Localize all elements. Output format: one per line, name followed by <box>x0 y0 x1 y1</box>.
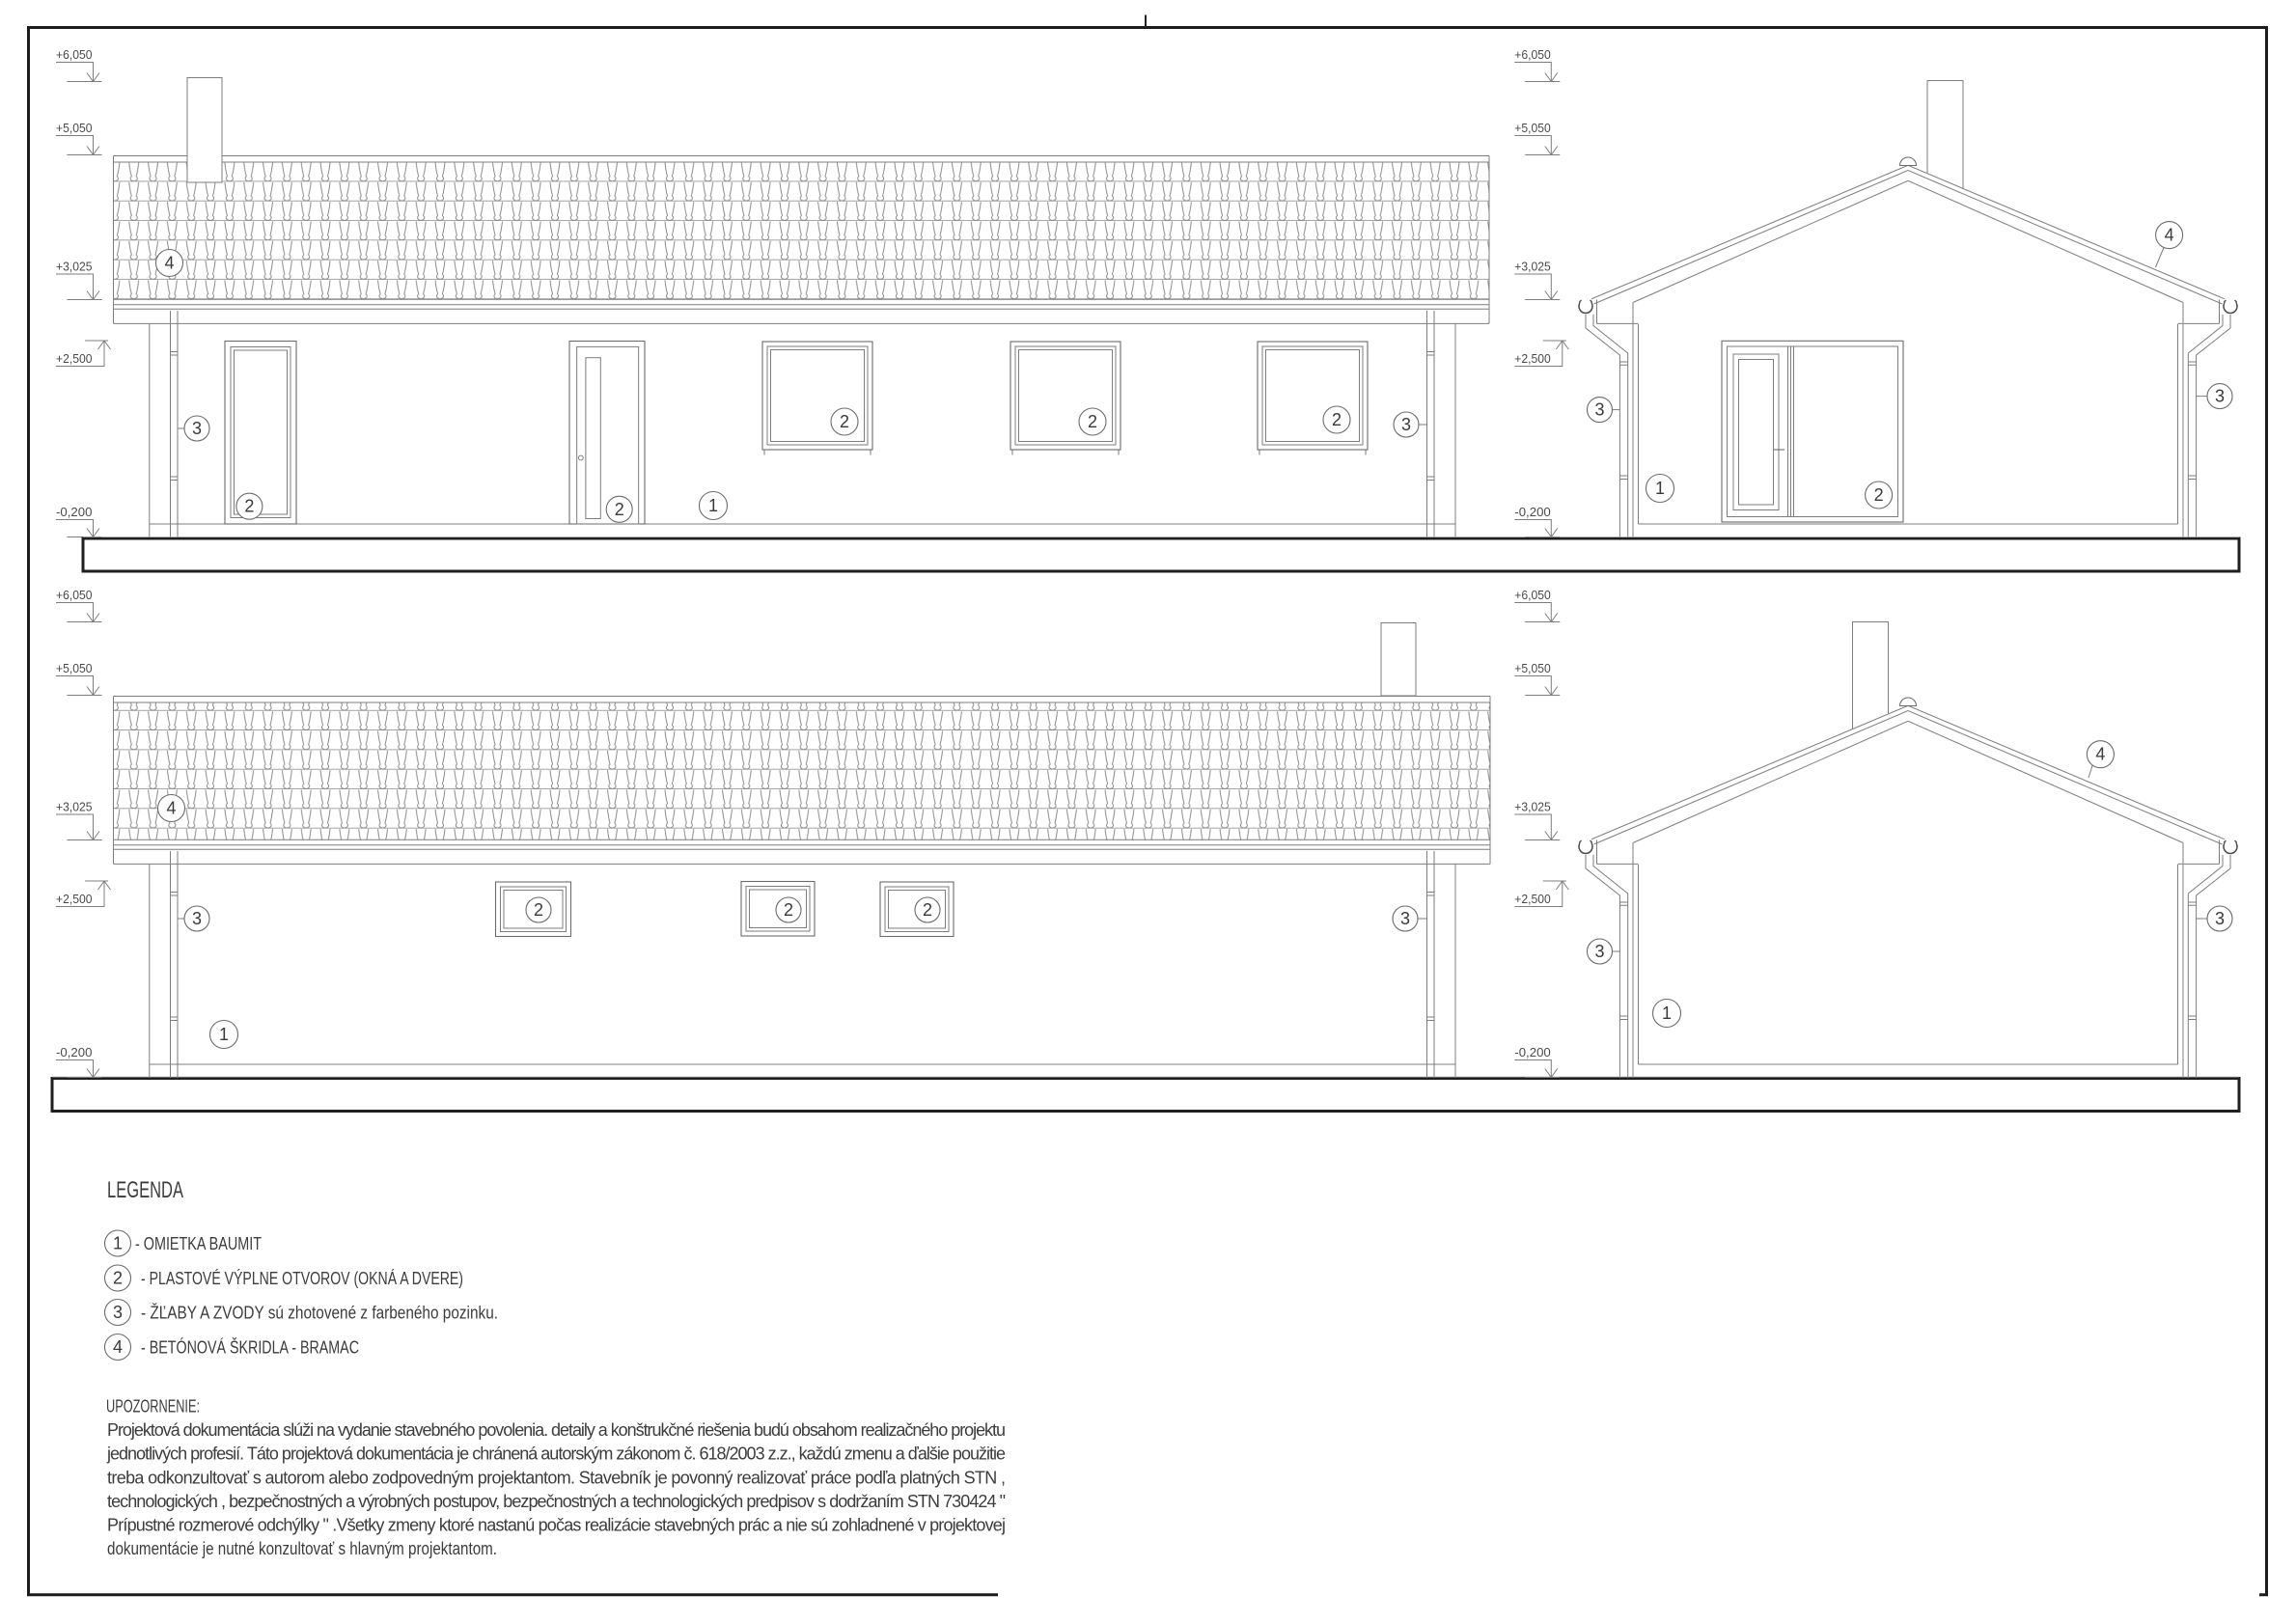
svg-text:+6,050: +6,050 <box>1514 47 1551 62</box>
svg-text:+3,025: +3,025 <box>56 260 93 274</box>
svg-text:+6,050: +6,050 <box>56 588 93 602</box>
svg-text:1: 1 <box>1662 1004 1672 1023</box>
svg-text:jednotlivých profesií. Táto pr: jednotlivých profesií. Táto projektová d… <box>106 1444 1006 1464</box>
svg-text:Prípustné rozmerové odchýlky ": Prípustné rozmerové odchýlky " .Všetky z… <box>107 1516 1006 1535</box>
svg-text:1: 1 <box>219 1025 229 1044</box>
svg-text:2: 2 <box>113 1269 123 1288</box>
svg-text:3: 3 <box>2215 387 2225 406</box>
svg-text:+5,050: +5,050 <box>56 121 93 135</box>
svg-text:2: 2 <box>615 500 624 519</box>
svg-text:2: 2 <box>244 497 254 516</box>
svg-text:+2,500: +2,500 <box>56 892 93 906</box>
svg-text:2: 2 <box>1874 485 1884 505</box>
svg-text:UPOZORNENIE:: UPOZORNENIE: <box>106 1397 200 1417</box>
svg-text:+3,025: +3,025 <box>56 800 93 814</box>
svg-text:4: 4 <box>113 1337 123 1357</box>
svg-text:2: 2 <box>1332 410 1342 429</box>
svg-text:- ŽĽABY A ZVODY sú zhotovené z: - ŽĽABY A ZVODY sú zhotovené z farbeného… <box>141 1304 498 1323</box>
svg-text:2: 2 <box>923 900 932 920</box>
svg-text:+5,050: +5,050 <box>1514 121 1551 135</box>
svg-text:treba odkonzultovať s autorom: treba odkonzultovať s autorom alebo zodp… <box>107 1468 1006 1487</box>
svg-text:+2,500: +2,500 <box>1514 351 1551 366</box>
svg-text:+5,050: +5,050 <box>56 661 93 675</box>
svg-text:2: 2 <box>534 900 543 920</box>
svg-text:1: 1 <box>113 1234 123 1253</box>
svg-text:+6,050: +6,050 <box>1514 588 1551 602</box>
svg-text:technologických , bezpečnostný: technologických , bezpečnostných a výrob… <box>107 1492 1006 1511</box>
svg-text:-0,200: -0,200 <box>56 505 93 519</box>
svg-text:+6,050: +6,050 <box>56 47 93 62</box>
svg-text:- PLASTOVÉ VÝPLNE OTVOROV (OKN: - PLASTOVÉ VÝPLNE OTVOROV (OKNÁ A DVERE) <box>141 1269 463 1288</box>
svg-text:1: 1 <box>708 496 718 515</box>
svg-text:3: 3 <box>192 909 202 928</box>
svg-text:2: 2 <box>784 900 793 920</box>
svg-text:-0,200: -0,200 <box>1514 505 1551 519</box>
svg-text:4: 4 <box>2165 226 2174 245</box>
svg-text:1: 1 <box>1655 479 1665 498</box>
svg-text:3: 3 <box>2215 909 2225 928</box>
svg-text:4: 4 <box>166 799 176 818</box>
svg-text:3: 3 <box>1400 909 1410 928</box>
svg-text:3: 3 <box>1594 400 1604 420</box>
svg-text:4: 4 <box>164 254 174 273</box>
svg-text:4: 4 <box>2095 745 2105 764</box>
svg-text:dokumentácie je nutné konzulto: dokumentácie je nutné konzultovať s hlav… <box>107 1539 497 1558</box>
svg-text:2: 2 <box>840 412 849 431</box>
svg-text:LEGENDA: LEGENDA <box>107 1177 183 1203</box>
svg-text:3: 3 <box>113 1303 123 1322</box>
svg-text:3: 3 <box>192 419 202 438</box>
svg-text:+2,500: +2,500 <box>56 351 93 366</box>
svg-text:3: 3 <box>1594 942 1604 961</box>
svg-text:+3,025: +3,025 <box>1514 260 1551 274</box>
svg-text:+2,500: +2,500 <box>1514 892 1551 906</box>
svg-text:2: 2 <box>1088 412 1097 431</box>
svg-text:-0,200: -0,200 <box>56 1045 93 1059</box>
svg-text:3: 3 <box>1401 415 1411 434</box>
svg-text:+3,025: +3,025 <box>1514 800 1551 814</box>
svg-text:Projektová dokumentácia slúži: Projektová dokumentácia slúži na vydanie… <box>107 1420 1006 1440</box>
svg-text:- OMIETKA BAUMIT: - OMIETKA BAUMIT <box>135 1234 262 1253</box>
svg-text:- BETÓNOVÁ ŠKRIDLA - BRAMAC: - BETÓNOVÁ ŠKRIDLA - BRAMAC <box>141 1337 359 1358</box>
svg-text:-0,200: -0,200 <box>1514 1045 1551 1059</box>
svg-text:+5,050: +5,050 <box>1514 661 1551 675</box>
